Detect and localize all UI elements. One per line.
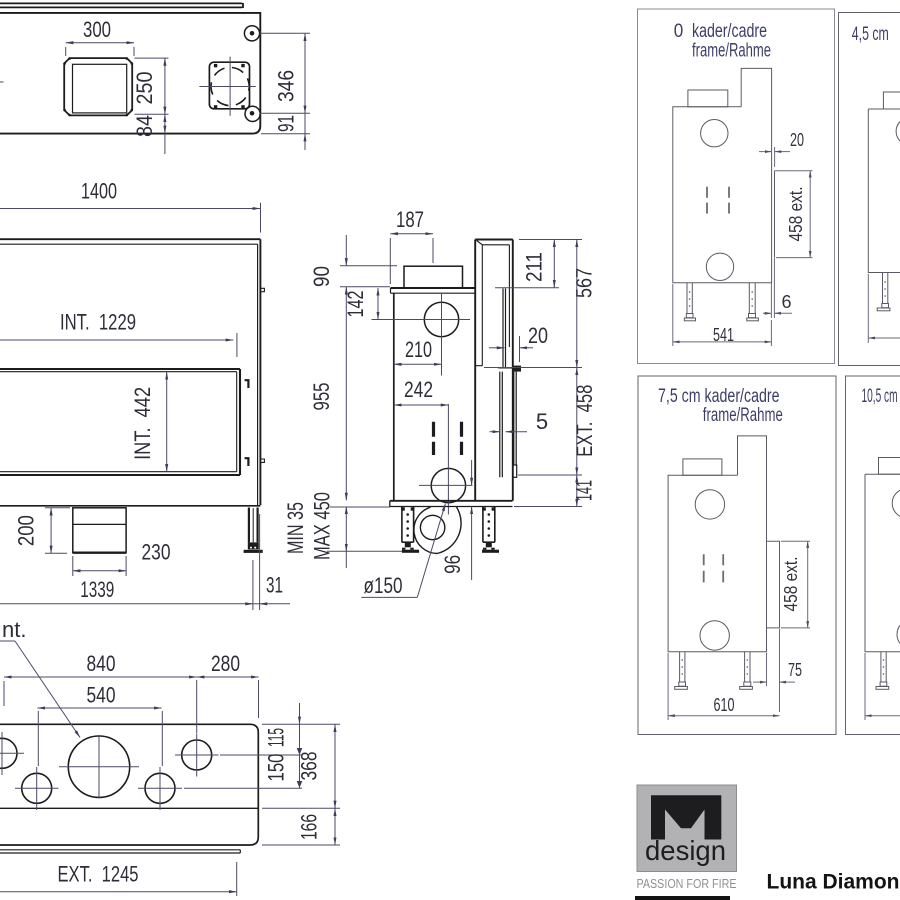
svg-text:166: 166 bbox=[297, 814, 322, 840]
svg-text:96: 96 bbox=[440, 555, 465, 574]
svg-text:6: 6 bbox=[781, 292, 791, 312]
svg-text:150: 150 bbox=[264, 754, 289, 782]
svg-text:frame/Rahme: frame/Rahme bbox=[703, 405, 783, 426]
svg-text:frame/Rahme: frame/Rahme bbox=[692, 41, 771, 62]
svg-text:MIN 35: MIN 35 bbox=[283, 502, 308, 554]
svg-text:300: 300 bbox=[83, 17, 111, 42]
svg-text:7,5 cm kader/cadre: 7,5 cm kader/cadre bbox=[658, 386, 780, 407]
svg-text:230: 230 bbox=[142, 540, 171, 565]
svg-text:design: design bbox=[645, 835, 726, 866]
svg-text:1400: 1400 bbox=[81, 179, 117, 204]
svg-text:84: 84 bbox=[132, 115, 157, 137]
svg-text:20: 20 bbox=[790, 130, 804, 150]
svg-text:4,5 cm: 4,5 cm bbox=[852, 24, 889, 45]
svg-text:0: 0 bbox=[674, 21, 684, 42]
svg-text:955: 955 bbox=[309, 383, 334, 411]
svg-text:540: 540 bbox=[87, 683, 116, 708]
svg-text:115: 115 bbox=[264, 728, 289, 747]
svg-text:242: 242 bbox=[404, 377, 433, 402]
svg-text:200: 200 bbox=[14, 515, 39, 546]
svg-text:90: 90 bbox=[309, 266, 334, 287]
svg-text:368: 368 bbox=[297, 752, 322, 781]
svg-text:280: 280 bbox=[211, 651, 240, 676]
svg-text:141: 141 bbox=[572, 480, 597, 501]
svg-text:458 ext.: 458 ext. bbox=[786, 187, 806, 242]
svg-text:541: 541 bbox=[713, 325, 734, 345]
svg-text:210: 210 bbox=[405, 337, 432, 362]
svg-text:kader/cadre: kader/cadre bbox=[692, 21, 767, 42]
svg-text:250: 250 bbox=[132, 72, 157, 105]
svg-text:187: 187 bbox=[396, 207, 424, 232]
svg-text:610: 610 bbox=[714, 695, 735, 715]
svg-text:Luna Diamond: Luna Diamond bbox=[767, 870, 900, 893]
svg-text:458 ext.: 458 ext. bbox=[781, 557, 801, 612]
svg-text:31: 31 bbox=[266, 573, 283, 598]
svg-text:MAX 450: MAX 450 bbox=[310, 492, 335, 560]
svg-text:EXT. 1245: EXT. 1245 bbox=[58, 862, 139, 887]
svg-text:nt.: nt. bbox=[2, 617, 26, 642]
svg-text:211: 211 bbox=[522, 252, 547, 282]
svg-text:1339: 1339 bbox=[80, 577, 114, 602]
svg-text:840: 840 bbox=[87, 651, 116, 676]
svg-text:PASSION FOR FIRE: PASSION FOR FIRE bbox=[637, 876, 737, 891]
svg-text:5: 5 bbox=[536, 409, 548, 434]
svg-text:INT. 442: INT. 442 bbox=[130, 387, 155, 460]
svg-text:346: 346 bbox=[274, 70, 299, 102]
svg-text:10,5 cm: 10,5 cm bbox=[862, 386, 898, 407]
svg-text:INT. 1229: INT. 1229 bbox=[60, 309, 136, 334]
svg-text:EXT. 458: EXT. 458 bbox=[572, 385, 597, 457]
svg-text:20: 20 bbox=[528, 323, 548, 348]
svg-text:567: 567 bbox=[572, 268, 597, 298]
svg-text:142: 142 bbox=[343, 291, 368, 318]
svg-text:75: 75 bbox=[788, 660, 802, 680]
svg-text:ø150: ø150 bbox=[364, 573, 403, 598]
svg-text:91: 91 bbox=[274, 115, 299, 132]
